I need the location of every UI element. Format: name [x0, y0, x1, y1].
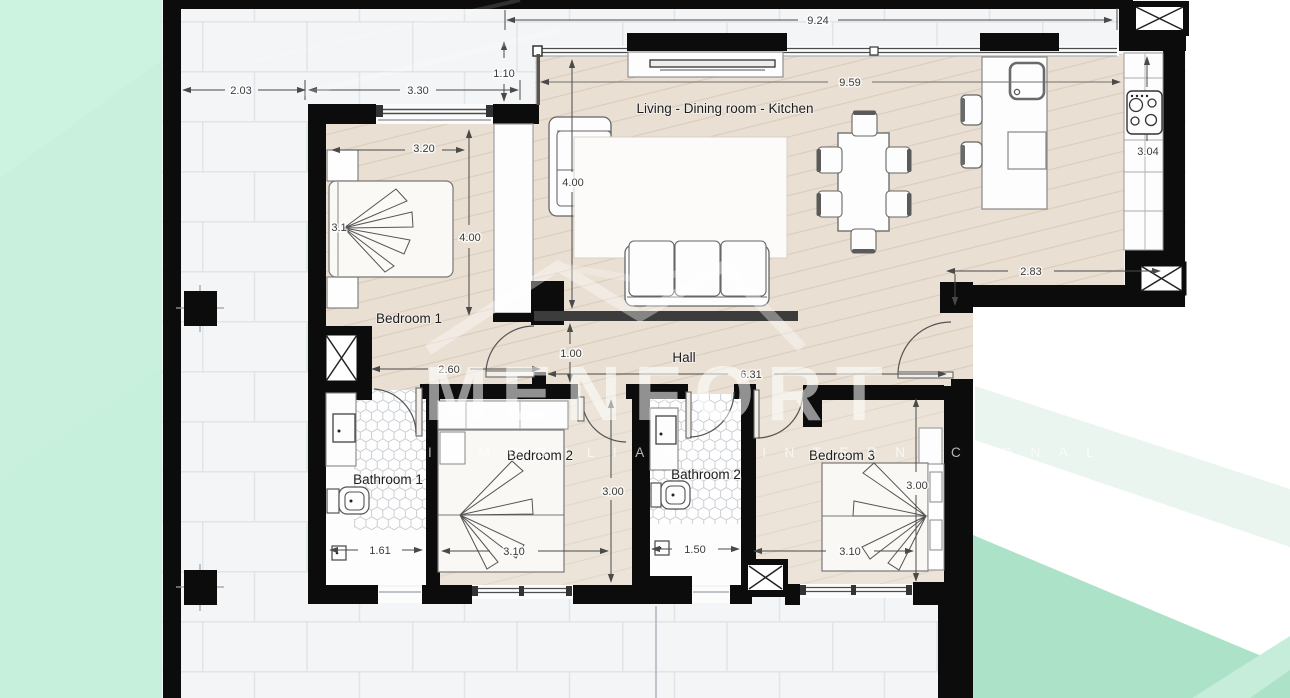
svg-text:2.83: 2.83 [1020, 266, 1041, 278]
svg-text:Living - Dining room - Kitchen: Living - Dining room - Kitchen [636, 101, 813, 116]
svg-text:1.10: 1.10 [493, 68, 514, 80]
svg-text:1.61: 1.61 [369, 545, 390, 557]
svg-text:3.20: 3.20 [413, 143, 434, 155]
svg-text:Bathroom 1: Bathroom 1 [353, 472, 423, 487]
svg-text:2.03: 2.03 [230, 85, 251, 97]
svg-text:MENFORT: MENFORT [424, 351, 896, 437]
svg-text:3.30: 3.30 [407, 85, 428, 97]
svg-text:4.00: 4.00 [459, 232, 480, 244]
svg-text:9.59: 9.59 [839, 77, 860, 89]
svg-text:3.1: 3.1 [331, 222, 346, 234]
svg-text:3.00: 3.00 [906, 480, 927, 492]
svg-text:Bedroom 1: Bedroom 1 [376, 311, 442, 326]
svg-text:Bathroom 2: Bathroom 2 [671, 467, 741, 482]
svg-text:3.10: 3.10 [839, 546, 860, 558]
svg-text:3.10: 3.10 [503, 546, 524, 558]
svg-text:3.04: 3.04 [1137, 146, 1158, 158]
svg-text:3.00: 3.00 [602, 486, 623, 498]
svg-text:1.50: 1.50 [684, 544, 705, 556]
svg-text:4.00: 4.00 [562, 177, 583, 189]
svg-text:INMOBILIARIA INTERNACIONAL: INMOBILIARIA INTERNACIONAL [428, 445, 1112, 460]
svg-text:9.24: 9.24 [807, 15, 828, 27]
